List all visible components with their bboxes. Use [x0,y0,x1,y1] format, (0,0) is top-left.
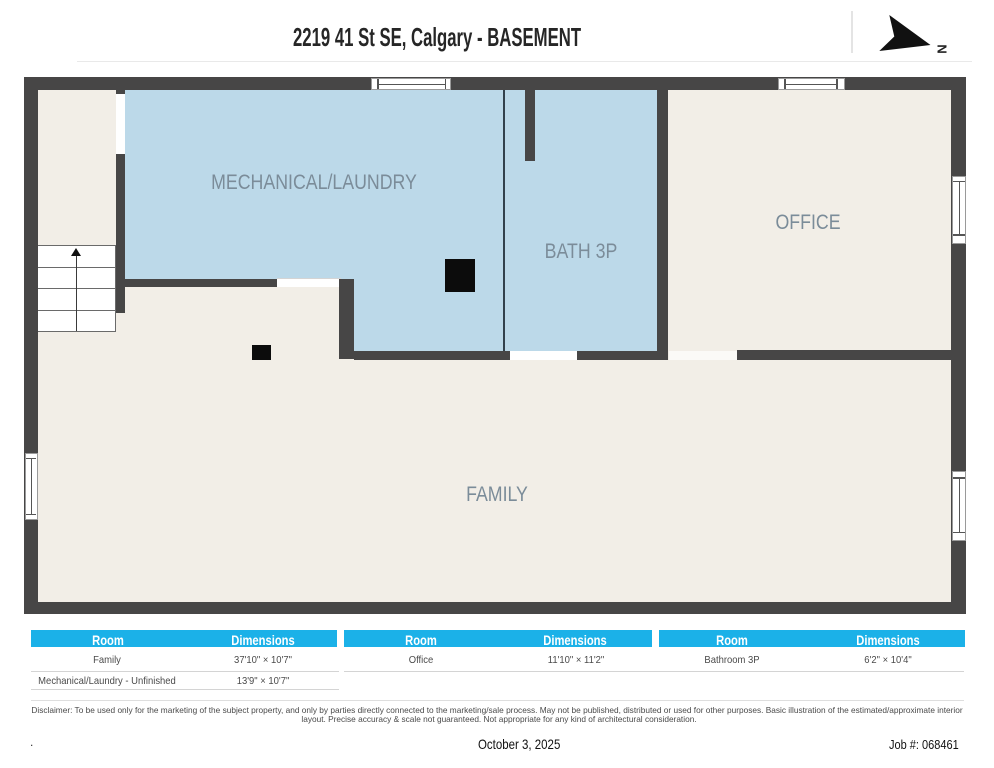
svg-text:N: N [935,44,950,53]
